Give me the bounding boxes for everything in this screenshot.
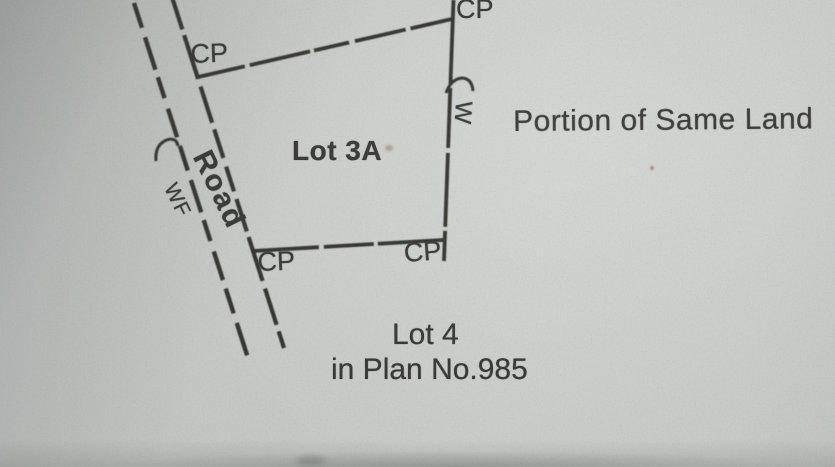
corner-point-label-north-east: CP <box>456 0 494 23</box>
survey-plan-photo: CP CP CP CP Lot 3A Road WF W Portion of … <box>0 0 835 467</box>
east-boundary-w-label: W <box>449 100 475 124</box>
paper-smudge <box>296 456 326 465</box>
corner-point-label-south-west: CP <box>257 248 295 276</box>
lot-east-boundary-line <box>444 0 454 261</box>
lot-north-boundary-line <box>198 19 452 77</box>
corner-point-label-north-west: CP <box>190 40 228 68</box>
lot-3a-label: Lot 3A <box>292 137 382 165</box>
caption-lot-4: Lot 4 <box>392 320 459 350</box>
caption-plan-number: in Plan No.985 <box>331 355 528 385</box>
road-fence-hook-mark <box>156 139 178 161</box>
portion-of-same-land-note: Portion of Same Land <box>513 104 813 137</box>
plan-line-drawing <box>0 0 835 467</box>
corner-point-label-south-east: CP <box>403 237 442 267</box>
